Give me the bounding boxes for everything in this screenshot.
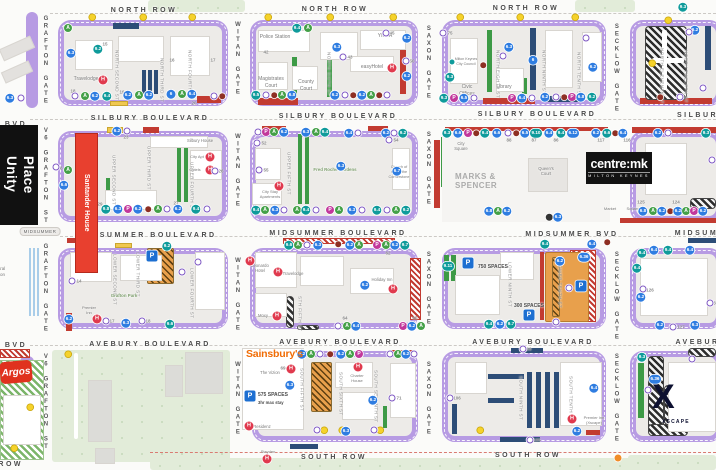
zone-badge: 6.4 [187, 90, 196, 99]
bay-ring-icon [686, 29, 693, 36]
road-segment-kh [286, 296, 294, 328]
road-segment-nv [154, 70, 158, 94]
premium-marker-icon: P [690, 207, 698, 215]
road-segment-red [143, 127, 159, 133]
green-marker-icon: A [312, 128, 320, 136]
zone-badge-teal: 9.2 [398, 129, 407, 138]
zone-badge: 6.2 [636, 293, 645, 302]
green-marker-icon: A [392, 206, 400, 214]
bay-ring-icon [255, 129, 262, 136]
road-segment-redh [410, 258, 421, 320]
signal-dot-icon [649, 60, 655, 66]
bay-ring-icon [313, 207, 320, 214]
street-label: UPPER THIRD ST [146, 146, 151, 190]
street-label: SOUTH NINTH ST [518, 376, 523, 420]
marks-and-spencer-label: MARKS & SPENCER [455, 172, 497, 190]
blvd-label: AVEBURY BOULEVARD [472, 338, 594, 347]
bay-ring-icon [263, 92, 270, 99]
blvd-label: NORTH ROW [302, 5, 368, 14]
zone-badge: 6.3 [113, 205, 122, 214]
blvd-label: MIDSUMMER BVD [525, 230, 618, 239]
zone-badge-teal: 9.3 [442, 129, 451, 138]
zone-badge: 6 [167, 90, 176, 99]
zone-badge-teal: 9.7 [506, 320, 515, 329]
bay-number: 50 [409, 59, 414, 64]
bay-ring-icon [389, 395, 396, 402]
zone-badge: 6.8 [287, 91, 296, 100]
zone-badge-teal: 9.3 [439, 94, 448, 103]
signal-dot-icon [572, 14, 578, 20]
street-label: UPPER SECOND ST [111, 155, 116, 205]
zone-badge: 6.3 [690, 321, 699, 330]
unity-place-building: Unity Place [0, 125, 38, 225]
zone-badge: 6.2 [657, 207, 666, 216]
bay-number: 17 [109, 319, 114, 324]
green-marker-icon: A [343, 322, 351, 330]
zone-badge: 6.2 [698, 207, 707, 216]
street-label: LOWER FOURTH ST [189, 268, 194, 318]
zone-badge: 6.2 [357, 91, 366, 100]
bay-ring-icon [359, 207, 366, 214]
zone-badge: 6.2 [407, 322, 416, 331]
zone-badge: 6.8 [638, 207, 647, 216]
premium-marker-icon: P [124, 205, 132, 213]
bay-ring-icon [139, 318, 146, 325]
bay-ring-icon [164, 206, 171, 213]
blvd-label: MIDSUMMER BOULEVARD [79, 231, 216, 240]
bay-number: 71 [396, 396, 401, 401]
zone-badge-teal: 9.6 [165, 320, 174, 329]
bay-number: 20 [191, 101, 196, 106]
bay-number: 23 [123, 135, 128, 140]
zone-badge-teal: 9.6 [602, 129, 611, 138]
bay-ring-icon [204, 206, 211, 213]
green-marker-icon: A [367, 91, 375, 99]
poi-label: Cotels [189, 167, 200, 172]
signal-dot-icon [89, 14, 95, 20]
bay-ring-icon [403, 58, 410, 65]
zone-badge: 6.2 [123, 91, 132, 100]
signal-dot-icon [457, 14, 463, 20]
road-segment-nv [688, 238, 716, 243]
signal-dot-icon [321, 427, 327, 433]
hotel-marker-icon: H [389, 285, 398, 294]
bay-ring-icon [500, 53, 507, 60]
blvd-label: MIDSUMMER BOULEVARD [269, 229, 406, 238]
poi-label: The Vizion [260, 370, 280, 375]
gate-label: V6 GRAFTON ST [41, 354, 49, 452]
hotel-marker-icon: H [263, 455, 272, 464]
road-segment-red [434, 140, 440, 208]
bay-number: 52 [261, 141, 266, 146]
bay-ring-icon [179, 269, 186, 276]
gate-label: WITAN GATE [233, 22, 241, 97]
centremk-wordmark: centre:mk [590, 158, 647, 171]
green-marker-icon: A [270, 128, 278, 136]
blvd-label: BVD [5, 341, 27, 350]
bay-number: 62 [385, 251, 390, 256]
argos-logo: Argos [0, 360, 33, 385]
zone-badge-teal: 9.2 [587, 93, 596, 102]
zone-badge-teal: 9.10 [530, 129, 542, 138]
premium-marker-icon: P [262, 128, 270, 136]
zone-badge: 6.2 [540, 93, 549, 102]
green-marker-icon: A [64, 24, 72, 32]
hotel-marker-icon: H [273, 312, 282, 321]
zone-badge: 6.36 [578, 253, 590, 262]
bay-ring-icon [53, 164, 60, 171]
road-segment-gr [177, 140, 181, 202]
zone-badge: 6.4 [344, 129, 353, 138]
road-segment-wh [74, 353, 78, 439]
marks-and-spencer-line1: MARKS & [455, 172, 497, 181]
green-marker-icon: A [261, 206, 269, 214]
green-marker-icon: A [135, 91, 143, 99]
zone-badge: 6.8 [576, 93, 585, 102]
parking-square-icon: P [463, 258, 474, 269]
zone-badge-teal: 9.4 [632, 264, 641, 273]
centremk-logo: centre:mk MILTON KEYNES [586, 152, 652, 184]
street-label: NORTH THIRD ST [159, 58, 164, 102]
zone-badge: 6.2 [133, 205, 142, 214]
zone-badge: 6.2 [390, 241, 399, 250]
zone-badge-teal: 9.7 [400, 241, 409, 250]
gate-label: SAXON GATE [424, 132, 432, 207]
zone-badge: 6.12 [567, 129, 579, 138]
signal-dot-icon [11, 445, 17, 451]
maroon-dot-icon [335, 241, 341, 247]
zone-badge: 6.2 [368, 396, 377, 405]
bay-number: 87 [531, 138, 536, 143]
bay-ring-icon [72, 93, 79, 100]
zone-badge: 6.2 [495, 320, 504, 329]
building [3, 395, 41, 445]
road-segment-redh [0, 349, 30, 358]
gate-label: WITAN GATE [233, 258, 241, 333]
street-label: NORTH TWELFTH ST [683, 50, 688, 103]
bay-number: 26 [218, 169, 223, 174]
road-segment-gr [487, 30, 492, 92]
zone-badge: 6.2 [591, 129, 600, 138]
railway-line [33, 248, 35, 316]
street-label: UPPER FIFTH ST [286, 152, 291, 195]
signal-dot-icon [377, 427, 383, 433]
poi-label: Magistrates Court [258, 76, 284, 89]
poi-label: Leonardo Hotel [251, 263, 269, 274]
bay-ring-icon [527, 437, 534, 444]
road-segment-nv [290, 444, 318, 449]
poi-label: County Court [298, 79, 314, 92]
zone-badge: 6.2 [360, 281, 369, 290]
green-marker-icon: A [382, 241, 390, 249]
road-segment-nv [554, 372, 559, 428]
signal-dot-icon [477, 427, 483, 433]
bay-ring-icon [520, 346, 527, 353]
zone-badge-teal: 9.4 [320, 128, 329, 137]
bay-number: 127 [677, 325, 685, 330]
bay-ring-icon [411, 351, 418, 358]
zone-badge: 6.3 [270, 206, 279, 215]
zone-badge: 6.4 [517, 94, 526, 103]
building [300, 256, 344, 286]
green-marker-icon: A [417, 322, 425, 330]
poi-label: Queen's Court [538, 166, 553, 177]
dark-dot-icon [546, 214, 553, 221]
building [185, 352, 223, 394]
green-marker-icon: A [81, 92, 89, 100]
bay-number: 64 [342, 316, 347, 321]
street-label: SOUTH FIFTH ST [299, 368, 304, 411]
zone-badge-teal: 9.4 [556, 129, 565, 138]
gate-label: SAXON GATE [424, 26, 432, 101]
zone-badge-teal: 9.4 [251, 206, 260, 215]
zone-badge: 6.2 [588, 63, 597, 72]
signal-dot-icon [265, 14, 271, 20]
road-segment-nv [545, 372, 550, 428]
zone-badge-teal: 9.4 [102, 92, 111, 101]
signal-dot-icon [327, 14, 333, 20]
note-label: 750 SPACES [478, 264, 508, 271]
bay-ring-icon [709, 157, 716, 164]
blvd-label: AVEBURY BOULEVARD [89, 340, 211, 349]
pill-label: MIDSUMMER [20, 227, 61, 236]
zone-badge: 6.6 [59, 181, 68, 190]
mk-city-centre-parking-map: NORTH ROWNORTH ROWNORTH ROWSILBURY BOULE… [0, 0, 716, 470]
zone-badge: 6.2 [64, 315, 73, 324]
zone-badge-teal: 9.4 [301, 206, 310, 215]
poi-label: Charter House [350, 373, 363, 383]
centremk-subtitle: MILTON KEYNES [588, 172, 650, 179]
bay-ring-icon [387, 351, 394, 358]
zone-badge: 6.3 [553, 213, 562, 222]
zone-badge: 6.2 [555, 257, 564, 266]
bay-number: 126 [646, 288, 654, 293]
santander-house-building: Santander House [75, 133, 98, 273]
railway-line [37, 248, 39, 316]
poi-label: City Square [454, 141, 468, 152]
gate-label: WITAN GATE [233, 362, 241, 437]
street-label: STH FIFTH ST [297, 296, 302, 331]
premium-marker-icon: P [450, 94, 458, 102]
parking-square-icon: P [524, 310, 535, 321]
railway-line [29, 248, 31, 316]
poi-label: Market [604, 206, 616, 211]
poi-label: Silbury House [187, 138, 213, 143]
bay-number: 14 [76, 279, 81, 284]
signal-dot-icon [65, 351, 71, 357]
signal-dot-icon [27, 404, 33, 410]
maroon-dot-icon [657, 94, 663, 100]
road-segment-dash [150, 452, 716, 453]
zone-badge: 6.3 [504, 43, 513, 52]
zone-badge: 6.4 [618, 129, 627, 138]
zone-badge: 6.3 [285, 381, 294, 390]
bay-ring-icon [566, 285, 573, 292]
bay-ring-icon [386, 137, 393, 144]
building [390, 363, 416, 418]
zone-badge: 6.3 [301, 128, 310, 137]
zone-badge: 6.2 [402, 72, 411, 81]
hotel-marker-icon: H [287, 365, 296, 374]
bay-number: 54 [393, 138, 398, 143]
bay-ring-icon [195, 259, 202, 266]
hotel-marker-icon: H [388, 64, 397, 73]
zone-badge-teal: 9.4 [191, 205, 200, 214]
zone-badge: 6.5 [520, 129, 529, 138]
bay-number: 18 [145, 319, 150, 324]
road-segment-nv [536, 372, 541, 428]
premium-marker-icon: P [355, 350, 363, 358]
zone-badge: 6.3 [332, 43, 341, 52]
zone-badge: 6.6 [492, 129, 501, 138]
zone-badge-teal: 9.2 [93, 45, 102, 54]
blvd-label: SILBURY BOULEVARD [478, 110, 597, 119]
road-segment-orh [311, 362, 332, 412]
green-marker-icon: A [154, 205, 162, 213]
premium-marker-icon: P [508, 94, 516, 102]
bay-number: 45 [389, 31, 394, 36]
gate-label: GRAFTON GATE [41, 16, 49, 106]
zone-badge-teal: 9.3 [678, 3, 687, 12]
zone-badge-teal: 9.6 [284, 241, 293, 250]
blvd-label: SOUTH ROW [495, 451, 561, 460]
street-label: NORTH TENTH ST [576, 52, 581, 98]
building [255, 148, 281, 180]
zone-badge-teal: 9.4 [637, 249, 646, 258]
bay-number: 124 [672, 200, 680, 205]
zone-badge: 6.3 [313, 241, 322, 250]
gate-label: WITAN GATE [233, 134, 241, 209]
bay-number: 42 [263, 50, 268, 55]
premium-marker-icon: P [568, 93, 576, 101]
gate-label: GRAFTON GATE [41, 244, 49, 334]
parklbl-label: Grafton Park [111, 293, 138, 299]
bay-number: 55 [263, 168, 268, 173]
poi-label: Police Station [260, 34, 291, 41]
blvd-label: SILBURY [677, 111, 716, 120]
bay-ring-icon [529, 95, 536, 102]
gate-label: SAXON GATE [424, 252, 432, 327]
bay-number: 88 [506, 138, 511, 143]
zone-badge: 6.4 [685, 246, 694, 255]
zone-badge-teal: 9.2 [401, 206, 410, 215]
zone-badge: 6.2 [336, 350, 345, 359]
poi-label: Premier Inn (Xscape) [584, 415, 605, 425]
bay-ring-icon [553, 319, 560, 326]
bay-ring-icon [304, 242, 311, 249]
hotel-marker-icon: H [245, 422, 254, 431]
bay-ring-icon [371, 427, 378, 434]
zone-badge: 6.2 [572, 427, 581, 436]
road-segment-red [540, 252, 544, 320]
blvd-label: SOUTH ROW [301, 453, 367, 462]
argos-wordmark: Argos [1, 365, 31, 378]
sainsburys-logo: Sainsbury's [246, 348, 303, 360]
bay-number: 86 [553, 138, 558, 143]
bay-ring-icon [447, 395, 454, 402]
road-segment-nv [452, 404, 457, 434]
maroon-dot-icon [473, 130, 479, 136]
bay-ring-icon [707, 300, 714, 307]
blvd-label: SILBURY BOULEVARD [91, 114, 210, 123]
zone-badge: 6.7 [392, 167, 401, 176]
bay-ring-icon [384, 92, 391, 99]
zone-badge: 6.4 [589, 384, 598, 393]
green-marker-icon: A [307, 350, 315, 358]
signal-dot-icon [665, 17, 671, 23]
council-logo-icon [450, 60, 455, 65]
parklbl-label: Fred Roche Gardens [313, 167, 356, 173]
bay-ring-icon [670, 324, 677, 331]
road-segment-yl [110, 101, 128, 106]
green-marker-icon: A [64, 166, 72, 174]
building [455, 275, 500, 315]
hotel-marker-icon: H [206, 153, 215, 162]
zone-badge: 6.2 [173, 205, 182, 214]
bay-ring-icon [553, 94, 560, 101]
zone-badge: 6.2 [279, 128, 288, 137]
road-segment-gr [383, 406, 387, 428]
blvd-label: AVEBURY BOULEVARD [279, 338, 401, 347]
bay-ring-icon [314, 427, 321, 434]
bay-number: 69 [280, 366, 285, 371]
building [88, 380, 112, 442]
gate-label: SECKLOW GATE [612, 354, 620, 444]
bay-ring-icon [665, 130, 672, 137]
signal-dot-icon [390, 14, 396, 20]
zone-badge: 6.4 [587, 240, 596, 249]
zone-badge: 6.2 [144, 91, 153, 100]
poi-label: City Apt [190, 154, 204, 159]
signal-dot-icon [140, 14, 146, 20]
road-segment-nv [113, 23, 139, 29]
poi-label: Milton Keynes City Council [455, 57, 478, 66]
building [455, 362, 487, 394]
bay-ring-icon [677, 94, 684, 101]
road-segment-wh [652, 58, 684, 63]
zone-badge-teal: 9.4 [372, 206, 381, 215]
green-marker-icon: A [304, 24, 312, 32]
bay-ring-icon [335, 323, 342, 330]
green-marker-icon: A [278, 91, 286, 99]
poi-label: Moxy [258, 313, 268, 318]
parking-square-icon: P [245, 391, 256, 402]
road-segment-red [620, 218, 716, 223]
zone-badge: 6.2 [112, 127, 121, 136]
maroon-dot-icon [145, 206, 151, 212]
zone-badge: 6.2 [653, 129, 662, 138]
maroon-dot-icon [561, 94, 567, 100]
bay-ring-icon [583, 35, 590, 42]
green-marker-icon: A [346, 350, 354, 358]
building [118, 36, 164, 62]
street-label: NORTH NINTH ST [541, 50, 546, 94]
bay-number: 125 [637, 200, 645, 205]
note-label: 575 SPACES [258, 392, 288, 399]
zone-badge-teal: 9.2 [162, 242, 171, 251]
zone-badge: 6.3 [341, 427, 350, 436]
premium-marker-icon: P [464, 129, 472, 137]
maroon-dot-icon [612, 130, 618, 136]
unity-place-label: Unity Place [2, 156, 36, 194]
blvd-label: AVEBURY [676, 338, 716, 347]
bay-ring-icon [254, 140, 261, 147]
bay-ring-icon [689, 356, 696, 363]
bay-number: 16 [169, 58, 174, 63]
maroon-dot-icon [513, 130, 519, 136]
zone-badge-teal: 9.4 [484, 320, 493, 329]
zone-badge: 6.8 [484, 207, 493, 216]
